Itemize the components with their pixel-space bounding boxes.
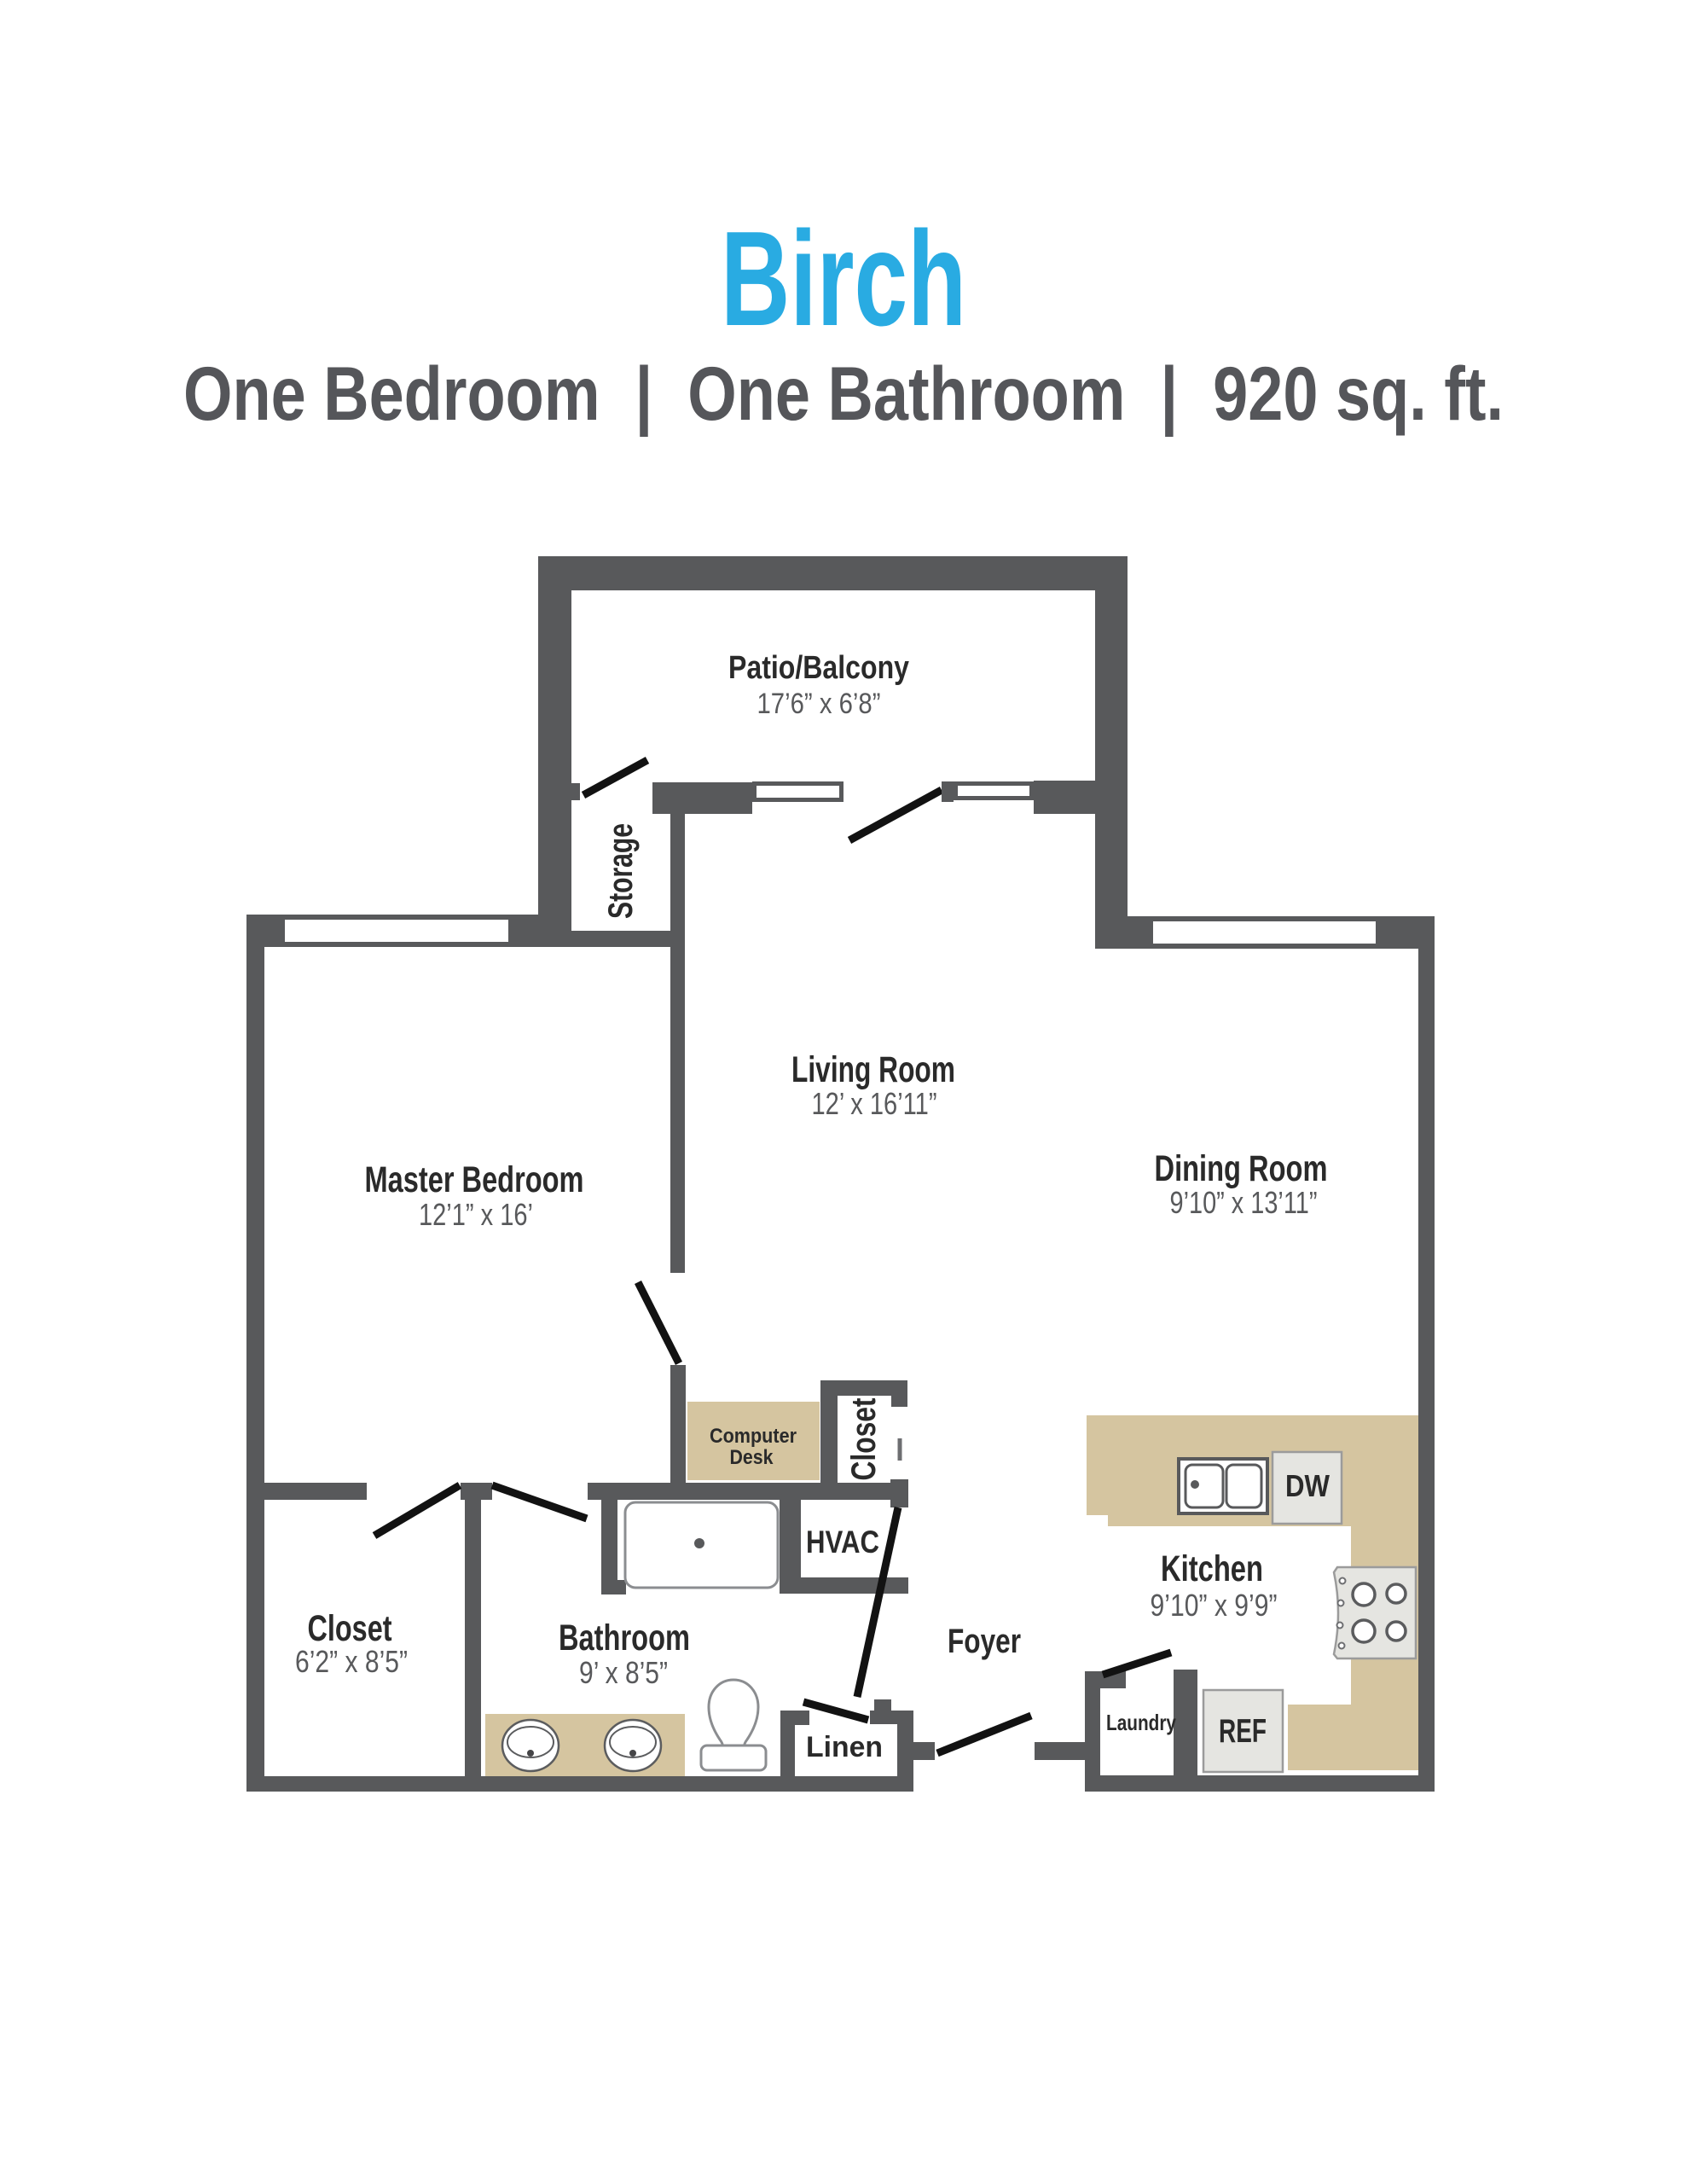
svg-text:DW: DW [1285,1468,1330,1503]
svg-text:Dining Room: Dining Room [1155,1148,1328,1189]
svg-text:Kitchen: Kitchen [1161,1548,1263,1589]
svg-text:Closet: Closet [308,1608,392,1649]
svg-text:Master Bedroom: Master Bedroom [365,1159,584,1200]
svg-text:12’ x 16’11”: 12’ x 16’11” [812,1086,937,1121]
svg-text:Computer: Computer [710,1425,797,1448]
svg-text:9’ x 8’5”: 9’ x 8’5” [579,1655,668,1690]
svg-text:17’6” x 6’8”: 17’6” x 6’8” [757,688,881,720]
svg-text:9’10” x 13’11”: 9’10” x 13’11” [1170,1185,1318,1220]
svg-text:9’10” x 9’9”: 9’10” x 9’9” [1151,1588,1278,1623]
svg-text:One Bedroom | One Bathroom: One Bedroom | One Bathroom | 920 sq. ft. [183,351,1504,437]
svg-text:Storage: Storage [602,823,640,919]
svg-text:Laundry: Laundry [1106,1710,1176,1735]
svg-text:Closet: Closet [845,1398,883,1481]
svg-text:Bathroom: Bathroom [559,1618,690,1658]
svg-text:HVAC: HVAC [806,1525,879,1560]
svg-text:REF: REF [1219,1713,1267,1750]
svg-text:Linen: Linen [806,1731,883,1763]
svg-text:6’2” x 8’5”: 6’2” x 8’5” [295,1644,408,1679]
svg-text:Desk: Desk [730,1446,774,1469]
svg-text:Foyer: Foyer [948,1623,1021,1660]
svg-text:12’1” x 16’: 12’1” x 16’ [419,1197,533,1232]
svg-text:Birch: Birch [721,204,966,354]
svg-text:Patio/Balcony: Patio/Balcony [728,650,909,686]
svg-text:Living Room: Living Room [791,1049,955,1090]
